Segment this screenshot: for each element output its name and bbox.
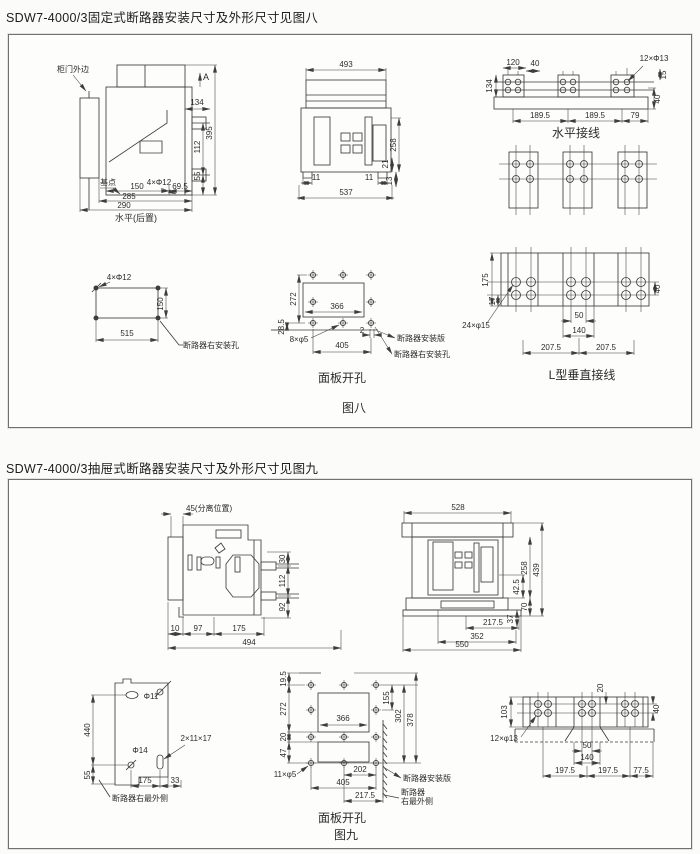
dim-label: 11 bbox=[312, 173, 321, 182]
dim-label: 79 bbox=[631, 111, 640, 120]
dim-label: 366 bbox=[336, 714, 350, 723]
dim-label: 19.5 bbox=[279, 671, 288, 687]
fig9-labels: 45(分离位置)3011292109717549452825843942.570… bbox=[83, 503, 661, 842]
figure-caption: 图九 bbox=[334, 828, 358, 842]
fig9-panel-cutout bbox=[287, 673, 421, 803]
dim-label: 140 bbox=[572, 326, 586, 335]
dim-label: 405 bbox=[335, 341, 349, 350]
dim-label: 439 bbox=[532, 563, 541, 577]
fig8-title: SDW7-4000/3固定式断路器安装尺寸及外形尺寸见图八 bbox=[6, 7, 318, 26]
dim-label: 189.5 bbox=[530, 111, 551, 120]
dim-label: 断路器 bbox=[401, 787, 425, 797]
dim-label: 40 bbox=[653, 94, 662, 103]
dim-label: 37 bbox=[506, 614, 515, 623]
dim-label: 40 bbox=[531, 59, 540, 68]
dim-label: 50 bbox=[583, 741, 592, 750]
dim-label: 207.5 bbox=[596, 343, 617, 352]
dim-label: 197.5 bbox=[555, 766, 576, 775]
dim-label: 11×φ5 bbox=[274, 770, 297, 779]
dim-label: 395 bbox=[205, 126, 214, 140]
dim-label: 15 bbox=[659, 70, 668, 79]
dim-label: 134 bbox=[485, 79, 494, 93]
dim-label: 112 bbox=[193, 140, 202, 153]
dim-label: 17 bbox=[488, 296, 497, 305]
dim-label: 258 bbox=[520, 561, 529, 575]
dim-label: 405 bbox=[336, 778, 350, 787]
dim-label: 272 bbox=[279, 702, 288, 716]
dim-label: 4×Φ12 bbox=[147, 178, 172, 187]
fig8-l-vertical-wiring bbox=[487, 247, 659, 355]
dim-label: 290 bbox=[117, 201, 131, 210]
dim-label: 28.5 bbox=[277, 319, 286, 335]
dim-label: 24×φ15 bbox=[462, 321, 490, 330]
dim-label: 21 bbox=[381, 159, 390, 168]
dim-label: 断路器右安装孔 bbox=[183, 340, 239, 350]
dim-label: 12×φ13 bbox=[490, 734, 518, 743]
dim-label: 175 bbox=[232, 624, 246, 633]
dim-label: 440 bbox=[83, 723, 92, 737]
dim-label: 10 bbox=[171, 624, 180, 633]
drawing-caption: 水平(后置) bbox=[115, 212, 157, 223]
dim-label: 基点 bbox=[100, 177, 116, 187]
dim-label: Φ14 bbox=[132, 746, 148, 755]
dim-label: 70 bbox=[520, 602, 529, 611]
dim-label: 202 bbox=[353, 765, 367, 774]
dim-label: 20 bbox=[279, 732, 288, 741]
dim-label: 断路器右安装孔 bbox=[394, 349, 450, 359]
dim-label: 55 bbox=[193, 171, 202, 180]
dim-label: 13 bbox=[385, 176, 394, 185]
dim-label: 47 bbox=[279, 748, 288, 757]
dim-label: Φ11 bbox=[144, 692, 159, 701]
drawing-caption: 面板开孔 bbox=[318, 811, 366, 825]
dim-label: 40 bbox=[652, 704, 661, 713]
dim-label: 120 bbox=[506, 58, 520, 67]
figure-caption: 图八 bbox=[342, 401, 366, 415]
dim-label: 33 bbox=[171, 776, 180, 785]
dim-label: 189.5 bbox=[585, 111, 606, 120]
dim-label: 断路器安装版 bbox=[397, 333, 445, 343]
dim-label: 2 bbox=[360, 326, 365, 335]
dim-label: 30 bbox=[278, 554, 287, 563]
dim-label: 207.5 bbox=[541, 343, 562, 352]
dim-label: 302 bbox=[394, 709, 403, 723]
fig8-mounting-holes bbox=[92, 282, 183, 345]
figure-8-drawing: 柜门外边A13439511255基点4×Φ1215069.5285290水平(后… bbox=[9, 35, 691, 427]
dim-label: 50 bbox=[575, 311, 584, 320]
dim-label: 40 bbox=[653, 284, 662, 293]
dim-label: 197.5 bbox=[598, 766, 619, 775]
dim-label: A bbox=[203, 72, 209, 82]
dim-label: 366 bbox=[330, 302, 344, 311]
scanned-drawing-page: { "sections": { "fig8": { "title": "SDW7… bbox=[0, 0, 700, 854]
dim-label: 55 bbox=[83, 770, 92, 779]
dim-label: 515 bbox=[120, 329, 134, 338]
dim-label: 155 bbox=[382, 691, 391, 705]
dim-label: 断路器安装版 bbox=[403, 773, 451, 783]
dim-label: 2×11×17 bbox=[181, 734, 213, 743]
dim-label: 77.5 bbox=[633, 766, 649, 775]
dim-label: 378 bbox=[406, 713, 415, 727]
dim-label: 92 bbox=[278, 602, 287, 611]
dim-label: 8×φ5 bbox=[290, 335, 309, 344]
dim-label: 352 bbox=[470, 632, 484, 641]
fig9-side-view bbox=[161, 514, 341, 650]
dim-label: 柜门外边 bbox=[57, 64, 89, 74]
dim-label: 134 bbox=[190, 98, 204, 107]
dim-label: 右最外侧 bbox=[401, 796, 433, 806]
fig9-title: SDW7-4000/3抽屉式断路器安装尺寸及外形尺寸见图九 bbox=[6, 458, 318, 477]
fig8-side-view bbox=[73, 65, 217, 212]
dim-label: 258 bbox=[389, 138, 398, 152]
dim-label: 12×Φ13 bbox=[640, 54, 669, 63]
dim-label: 217.5 bbox=[483, 618, 504, 627]
dim-label: 断路器右最外侧 bbox=[112, 793, 168, 803]
drawing-caption: 面板开孔 bbox=[318, 371, 366, 385]
dim-label: 528 bbox=[451, 503, 465, 512]
figure-9-drawing: 45(分离位置)3011292109717549452825843942.570… bbox=[9, 480, 691, 848]
fig8-bus-top-view bbox=[499, 145, 657, 215]
figure-9-panel: 45(分离位置)3011292109717549452825843942.570… bbox=[8, 479, 692, 849]
dim-label: 150 bbox=[156, 297, 165, 311]
dim-label: 494 bbox=[242, 638, 256, 647]
dim-label: 140 bbox=[580, 753, 594, 762]
dim-label: 493 bbox=[339, 60, 353, 69]
dim-label: 272 bbox=[289, 292, 298, 306]
dim-label: 537 bbox=[339, 188, 353, 197]
dim-label: 112 bbox=[278, 574, 287, 587]
dim-label: 285 bbox=[122, 192, 136, 201]
drawing-caption: 水平接线 bbox=[552, 125, 600, 140]
dim-label: 4×Φ12 bbox=[107, 273, 132, 282]
dim-label: 42.5 bbox=[512, 579, 521, 595]
figure-8-panel: 柜门外边A13439511255基点4×Φ1215069.5285290水平(后… bbox=[8, 34, 692, 428]
dim-label: 150 bbox=[130, 182, 144, 191]
fig9-front-view bbox=[402, 511, 544, 652]
drawing-caption: L型垂直接线 bbox=[549, 367, 616, 382]
dim-label: 175 bbox=[481, 273, 490, 287]
dim-label: 175 bbox=[138, 776, 152, 785]
dim-label: 11 bbox=[365, 173, 374, 182]
dim-label: 550 bbox=[455, 640, 469, 649]
dim-label: 103 bbox=[500, 705, 509, 719]
dim-label: 69.5 bbox=[172, 182, 188, 191]
dim-label: 20 bbox=[596, 683, 605, 692]
dim-label: 97 bbox=[194, 624, 203, 633]
dim-label: 45(分离位置) bbox=[186, 503, 233, 513]
dim-label: 217.5 bbox=[355, 791, 376, 800]
